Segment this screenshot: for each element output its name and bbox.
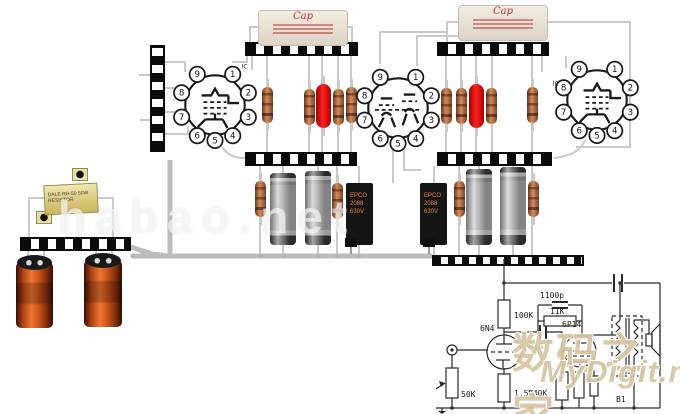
tube-pin-number: 5: [594, 131, 599, 141]
tube-pin-number: 6: [577, 127, 582, 137]
tube-pin-number: 9: [195, 70, 200, 80]
junction-dot: [131, 254, 136, 259]
terminal-strip-mid-right: [437, 152, 552, 166]
electrolytic-capacitor: [500, 167, 526, 245]
tube-socket-pentode-left: 1 2 3 4 5 6 7 8 9 IC: [169, 59, 261, 151]
junction-dot: [316, 254, 321, 259]
label-lines: [273, 24, 333, 26]
tube-pin-number: 4: [230, 132, 235, 142]
tube-pin-number: 1: [612, 65, 617, 75]
film-capacitor: Cap: [458, 5, 548, 41]
label-lines: [473, 23, 533, 25]
label-lines: [473, 27, 533, 29]
red-capacitor: [469, 84, 484, 128]
junction-dot: [335, 254, 340, 259]
resistor: [454, 181, 465, 217]
tube-pin-number: 4: [413, 135, 418, 145]
junction-dot: [357, 254, 362, 259]
socket-body: [567, 70, 626, 129]
tube-pin-number: 8: [179, 89, 184, 99]
terminal-strip-mid-left: [245, 152, 357, 166]
black-film-capacitor: EPCO 2088 630V: [420, 183, 447, 245]
plate-resistor-label: 100K: [514, 311, 533, 320]
tube-pin-number: 4: [612, 127, 617, 137]
filter-capacitor: [16, 262, 53, 328]
volume-pot-symbol: [446, 368, 458, 398]
resistor: [456, 88, 467, 124]
capacitor-label: 2088: [424, 201, 447, 209]
filter-capacitor: [84, 260, 122, 327]
tube-pin-number: 5: [395, 139, 400, 149]
tube1-label: 6N4: [480, 324, 495, 333]
capacitor-label: 630V: [424, 209, 447, 217]
tube-pin-number: 9: [378, 73, 383, 83]
tube-pin-number: 2: [246, 89, 251, 99]
tube-pin-number: 3: [628, 108, 633, 118]
tube-pin-number: 9: [577, 65, 582, 75]
terminal-strip-vertical: [150, 45, 165, 152]
resistor: [527, 87, 538, 123]
solder-terminal-post: [423, 238, 435, 247]
socket-body: [368, 78, 427, 137]
label-lines: [273, 28, 333, 30]
tube-pin-number: 7: [561, 108, 566, 118]
tube-pin-number: 6: [378, 135, 383, 145]
resistor: [304, 89, 315, 125]
volume-pot-label: 50K: [461, 390, 476, 399]
junction: [618, 281, 621, 284]
feedback-resistor-label: 11K: [550, 307, 565, 316]
tube-pin-number: 6: [195, 132, 200, 142]
resistor: [486, 88, 497, 124]
junction: [502, 406, 505, 409]
tube-pin-number: 2: [628, 84, 633, 94]
tube-pin-number: 8: [362, 92, 367, 102]
resistor: [333, 89, 344, 125]
label-lines: [273, 32, 333, 34]
mounting-tab: [72, 168, 88, 181]
plate-resistor-symbol: [498, 300, 510, 328]
tube-pin-number: 1: [230, 70, 235, 80]
cathode-resistor-symbol: [498, 374, 510, 402]
socket-body: [185, 75, 244, 134]
watermark-center: habao.net: [58, 190, 356, 244]
film-capacitor: Cap: [258, 10, 348, 46]
junction: [450, 406, 453, 409]
tube-pin-number: 5: [212, 136, 217, 146]
internal-connection-label: IC: [242, 65, 248, 71]
electrolytic-capacitor: [466, 169, 492, 245]
tube-pin-number: 3: [246, 113, 251, 123]
tube-pin-number: 2: [429, 92, 434, 102]
capacitor-label: EPCO: [424, 193, 447, 201]
red-capacitor: [316, 84, 331, 128]
tube-pin-number: 1: [413, 73, 418, 83]
capacitor-brand-label: Cap: [259, 11, 347, 22]
tube-pin-number: 7: [362, 116, 367, 126]
tube-socket-pentode-right: 1 2 3 4 5 6 7 8 9 IC: [551, 54, 643, 146]
junction: [502, 281, 505, 284]
terminal-strip-top-right: [437, 42, 549, 56]
tube-pin-number: 3: [429, 116, 434, 126]
feedback-cap-label: 1100p: [540, 291, 564, 300]
input-jack-pin: [450, 348, 453, 351]
label-lines: [473, 19, 533, 21]
tube-pin-number: 7: [179, 113, 184, 123]
tube-pin-number: 8: [561, 84, 566, 94]
junction-dot: [282, 254, 287, 259]
capacitor-brand-label: Cap: [459, 6, 547, 17]
watermark-site-english: MyDigit.net: [540, 354, 680, 390]
junction-dot: [259, 254, 264, 259]
internal-connection-label: IC: [553, 82, 559, 88]
tube-socket-dual-triode: 1 2 3 4 5 6 7 8 9: [352, 62, 444, 154]
wiring-diagram: Cap Cap EPCO 2088 630V EPCO 2088 630V: [0, 0, 680, 414]
resistor: [528, 181, 539, 217]
resistor: [262, 87, 273, 123]
